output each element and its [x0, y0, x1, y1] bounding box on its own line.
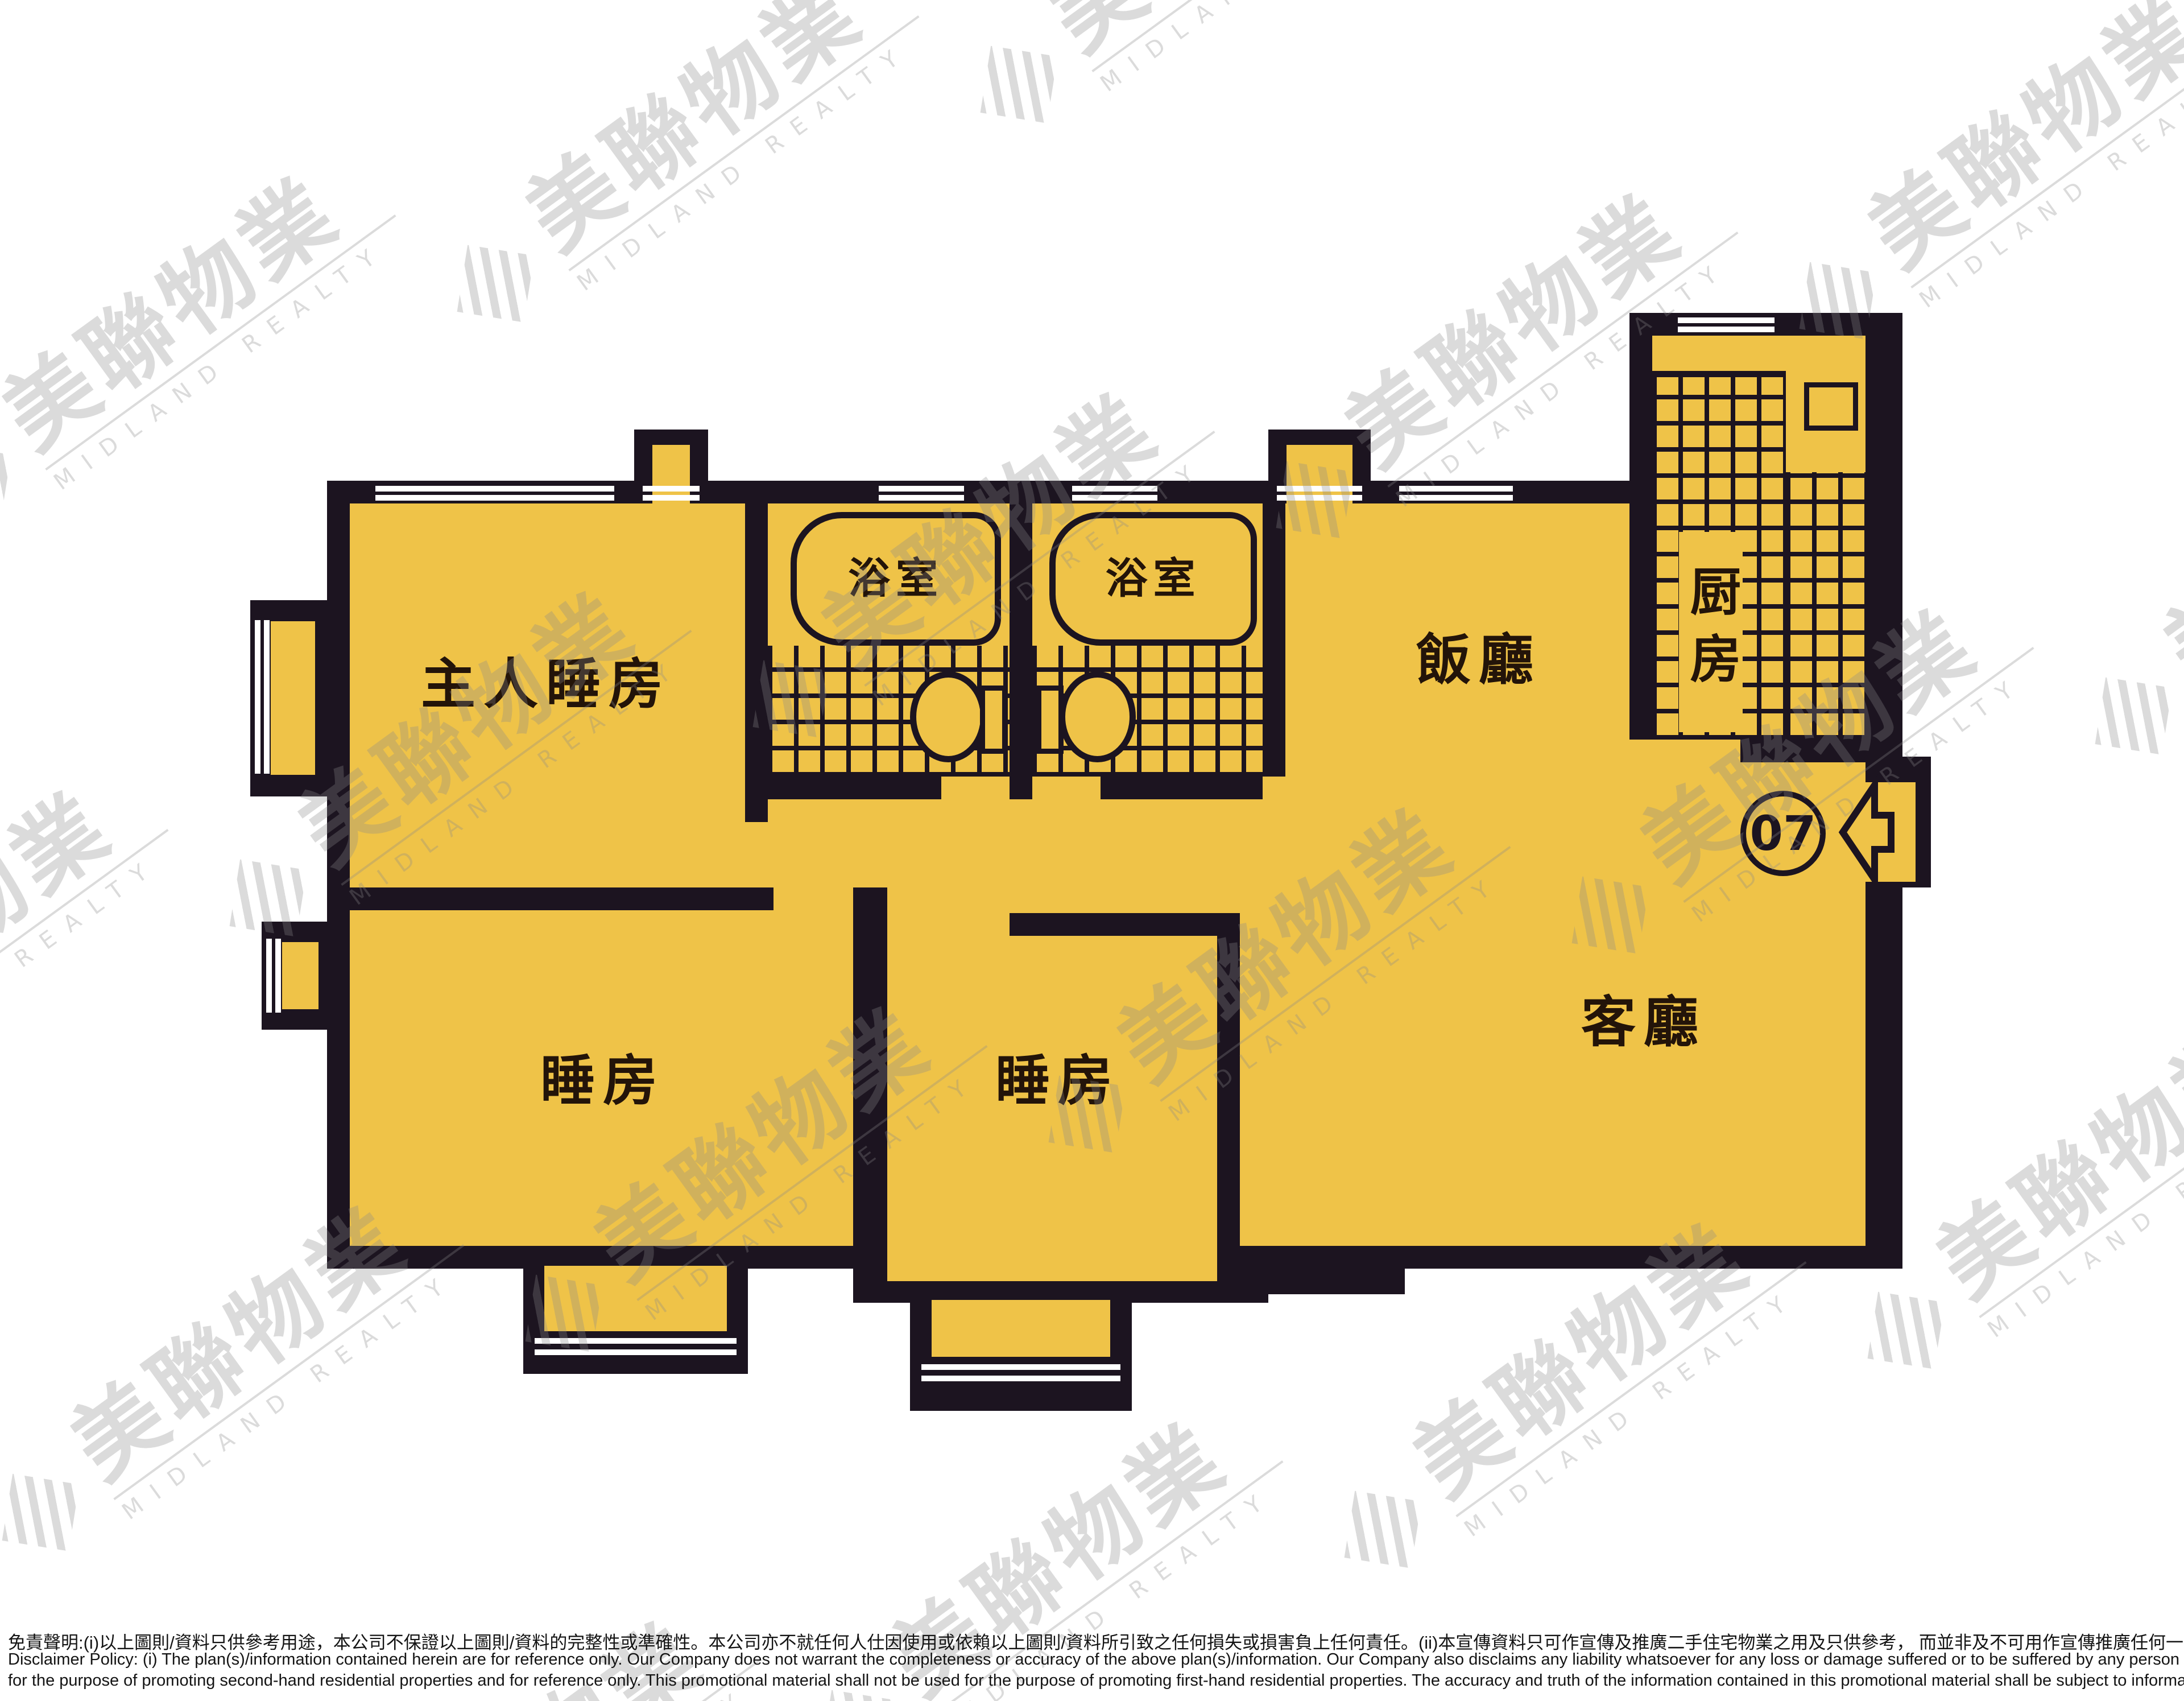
midland-watermark: 美聯物業 MIDLAND REALTY [0, 724, 210, 1199]
watermark-chinese-text: 美聯物業 [1923, 1011, 2184, 1312]
midland-logo-icon [1839, 1264, 1973, 1397]
watermark-english-text: MIDLAND REALTY [1983, 1084, 2184, 1343]
watermark-divider-line [568, 15, 919, 271]
wall [1217, 913, 1240, 1283]
midland-watermark: 美聯物業 MIDLAND REALTY [2042, 343, 2184, 818]
wall [1010, 913, 1240, 936]
bathroom-1-label: 浴室 [848, 555, 944, 603]
living-room-label: 客廳 [1530, 991, 1757, 1054]
watermark-chinese-text: 美聯物業 [1855, 0, 2184, 282]
wall [1263, 503, 1285, 777]
midland-logo-icon [2067, 649, 2184, 783]
window-mark [1277, 495, 1362, 501]
midland-logo-icon [952, 18, 1086, 151]
wall [768, 777, 941, 799]
window-mark [879, 495, 964, 501]
window-mark [1072, 495, 1157, 501]
dining-room-label: 飯廳 [1365, 629, 1592, 691]
watermark-divider-line [1910, 32, 2184, 288]
watermark-divider-line [1979, 1062, 2184, 1318]
bathtub-2: 浴室 [1049, 512, 1257, 646]
watermark-divider-line [0, 829, 169, 1085]
floor-bed2-extension [887, 1246, 1217, 1281]
window-mark [921, 1376, 1120, 1381]
window-mark [535, 1338, 737, 1344]
watermark-chinese-text: 美聯物業 [512, 0, 878, 265]
watermark-chinese-text: 美聯物業 [1036, 0, 1401, 66]
floor-bed1-bay [544, 1266, 727, 1331]
midland-watermark-text: 美聯物業 MIDLAND REALTY [512, 0, 938, 296]
wall [745, 503, 768, 822]
floorplan-scan-page: 浴室 浴室 主人睡房 飯廳 厨房 睡房 睡房 客廳 07 美聯物業 [0, 0, 2184, 1701]
bedroom-1-label: 睡房 [489, 1050, 717, 1112]
disclaimer-line-en-1: Disclaimer Policy: (i) The plan(s)/infor… [8, 1650, 2178, 1669]
window-mark [643, 486, 700, 492]
wall [350, 887, 773, 910]
watermark-english-text: MIDLAND REALTY [572, 37, 915, 296]
kitchen-appliance [1804, 382, 1858, 431]
floor-left-window [282, 942, 318, 1009]
window-mark [1399, 486, 1513, 492]
window-mark [1678, 327, 1774, 332]
entrance-arrow-icon [1838, 773, 1895, 892]
wall [1268, 1246, 1405, 1294]
watermark-chinese-text: 美聯物業 [0, 164, 355, 464]
window-mark [255, 620, 260, 774]
wall [1010, 503, 1032, 777]
window-mark [1072, 486, 1157, 492]
kitchen-label: 厨房 [1679, 532, 1743, 732]
unit-number: 07 [1750, 806, 1817, 861]
watermark-divider-line [45, 214, 396, 470]
wall [1629, 336, 1652, 740]
window-mark [266, 939, 272, 1013]
bedroom-2-label: 睡房 [944, 1050, 1172, 1112]
window-mark [375, 495, 614, 501]
watermark-english-text: MIDLAND REALTY [1914, 54, 2184, 313]
window-mark [1277, 486, 1362, 492]
floor-master-bay [271, 621, 315, 775]
window-mark [921, 1364, 1120, 1370]
midland-watermark-text: 美聯物業 MIDLAND REALTY [1036, 0, 1461, 97]
bathroom-2-label: 浴室 [1106, 555, 1201, 603]
watermark-english-text: MIDLAND REALTY [0, 850, 164, 1109]
window-mark [1399, 495, 1513, 501]
watermark-divider-line [1091, 0, 1442, 72]
window-mark [375, 486, 614, 492]
watermark-chinese-text: 美聯物業 [0, 778, 127, 1079]
floor-bed2-bay [932, 1300, 1110, 1357]
master-bedroom-label: 主人睡房 [364, 653, 728, 716]
wall [1740, 740, 1865, 762]
midland-logo-icon [0, 416, 39, 550]
watermark-english-text: MIDLAND REALTY [1095, 0, 1438, 97]
bathtub-1: 浴室 [791, 512, 1001, 646]
wall [853, 887, 887, 1286]
midland-logo-icon [1316, 1463, 1450, 1596]
toilet-2-bowl [1059, 671, 1136, 762]
midland-watermark-text: 美聯物業 MIDLAND REALTY [0, 137, 414, 496]
midland-watermark-text: 美聯物業 MIDLAND REALTY [1923, 985, 2184, 1343]
midland-watermark-text: 美聯物業 MIDLAND REALTY [1855, 0, 2184, 313]
watermark-divider-line [113, 1244, 464, 1500]
watermark-divider-line [1455, 1261, 1806, 1517]
unit-number-badge: 07 [1740, 791, 1826, 876]
midland-watermark-text: 美聯物業 MIDLAND REALTY [0, 752, 187, 1110]
window-mark [643, 495, 700, 501]
watermark-chinese-text: 美聯物業 [2150, 397, 2184, 697]
watermark-english-text: MIDLAND REALTY [1459, 1283, 1802, 1542]
disclaimer-line-en-2: for the purpose of promoting second-hand… [8, 1671, 2178, 1690]
watermark-english-text: MIDLAND REALTY [117, 1266, 460, 1525]
window-mark [879, 486, 964, 492]
window-mark [535, 1349, 737, 1355]
wall [1010, 777, 1032, 799]
toilet-1-tank [980, 686, 1007, 754]
midland-watermark-text: 美聯物業 MIDLAND REALTY [2150, 370, 2184, 729]
midland-logo-icon [0, 1446, 107, 1579]
window-mark [1678, 317, 1774, 323]
tiled-floor-kitchen [1786, 472, 1865, 740]
midland-watermark: 美聯物業 MIDLAND REALTY [404, 0, 962, 385]
midland-watermark: 美聯物業 MIDLAND REALTY [927, 0, 1485, 186]
watermark-english-text: MIDLAND REALTY [49, 236, 391, 495]
window-mark [275, 939, 281, 1013]
midland-logo-icon [429, 217, 562, 350]
wall [1101, 777, 1263, 799]
kitchen-counter-edge [1652, 371, 1786, 377]
window-mark [264, 620, 270, 774]
toilet-1-bowl [910, 671, 987, 762]
